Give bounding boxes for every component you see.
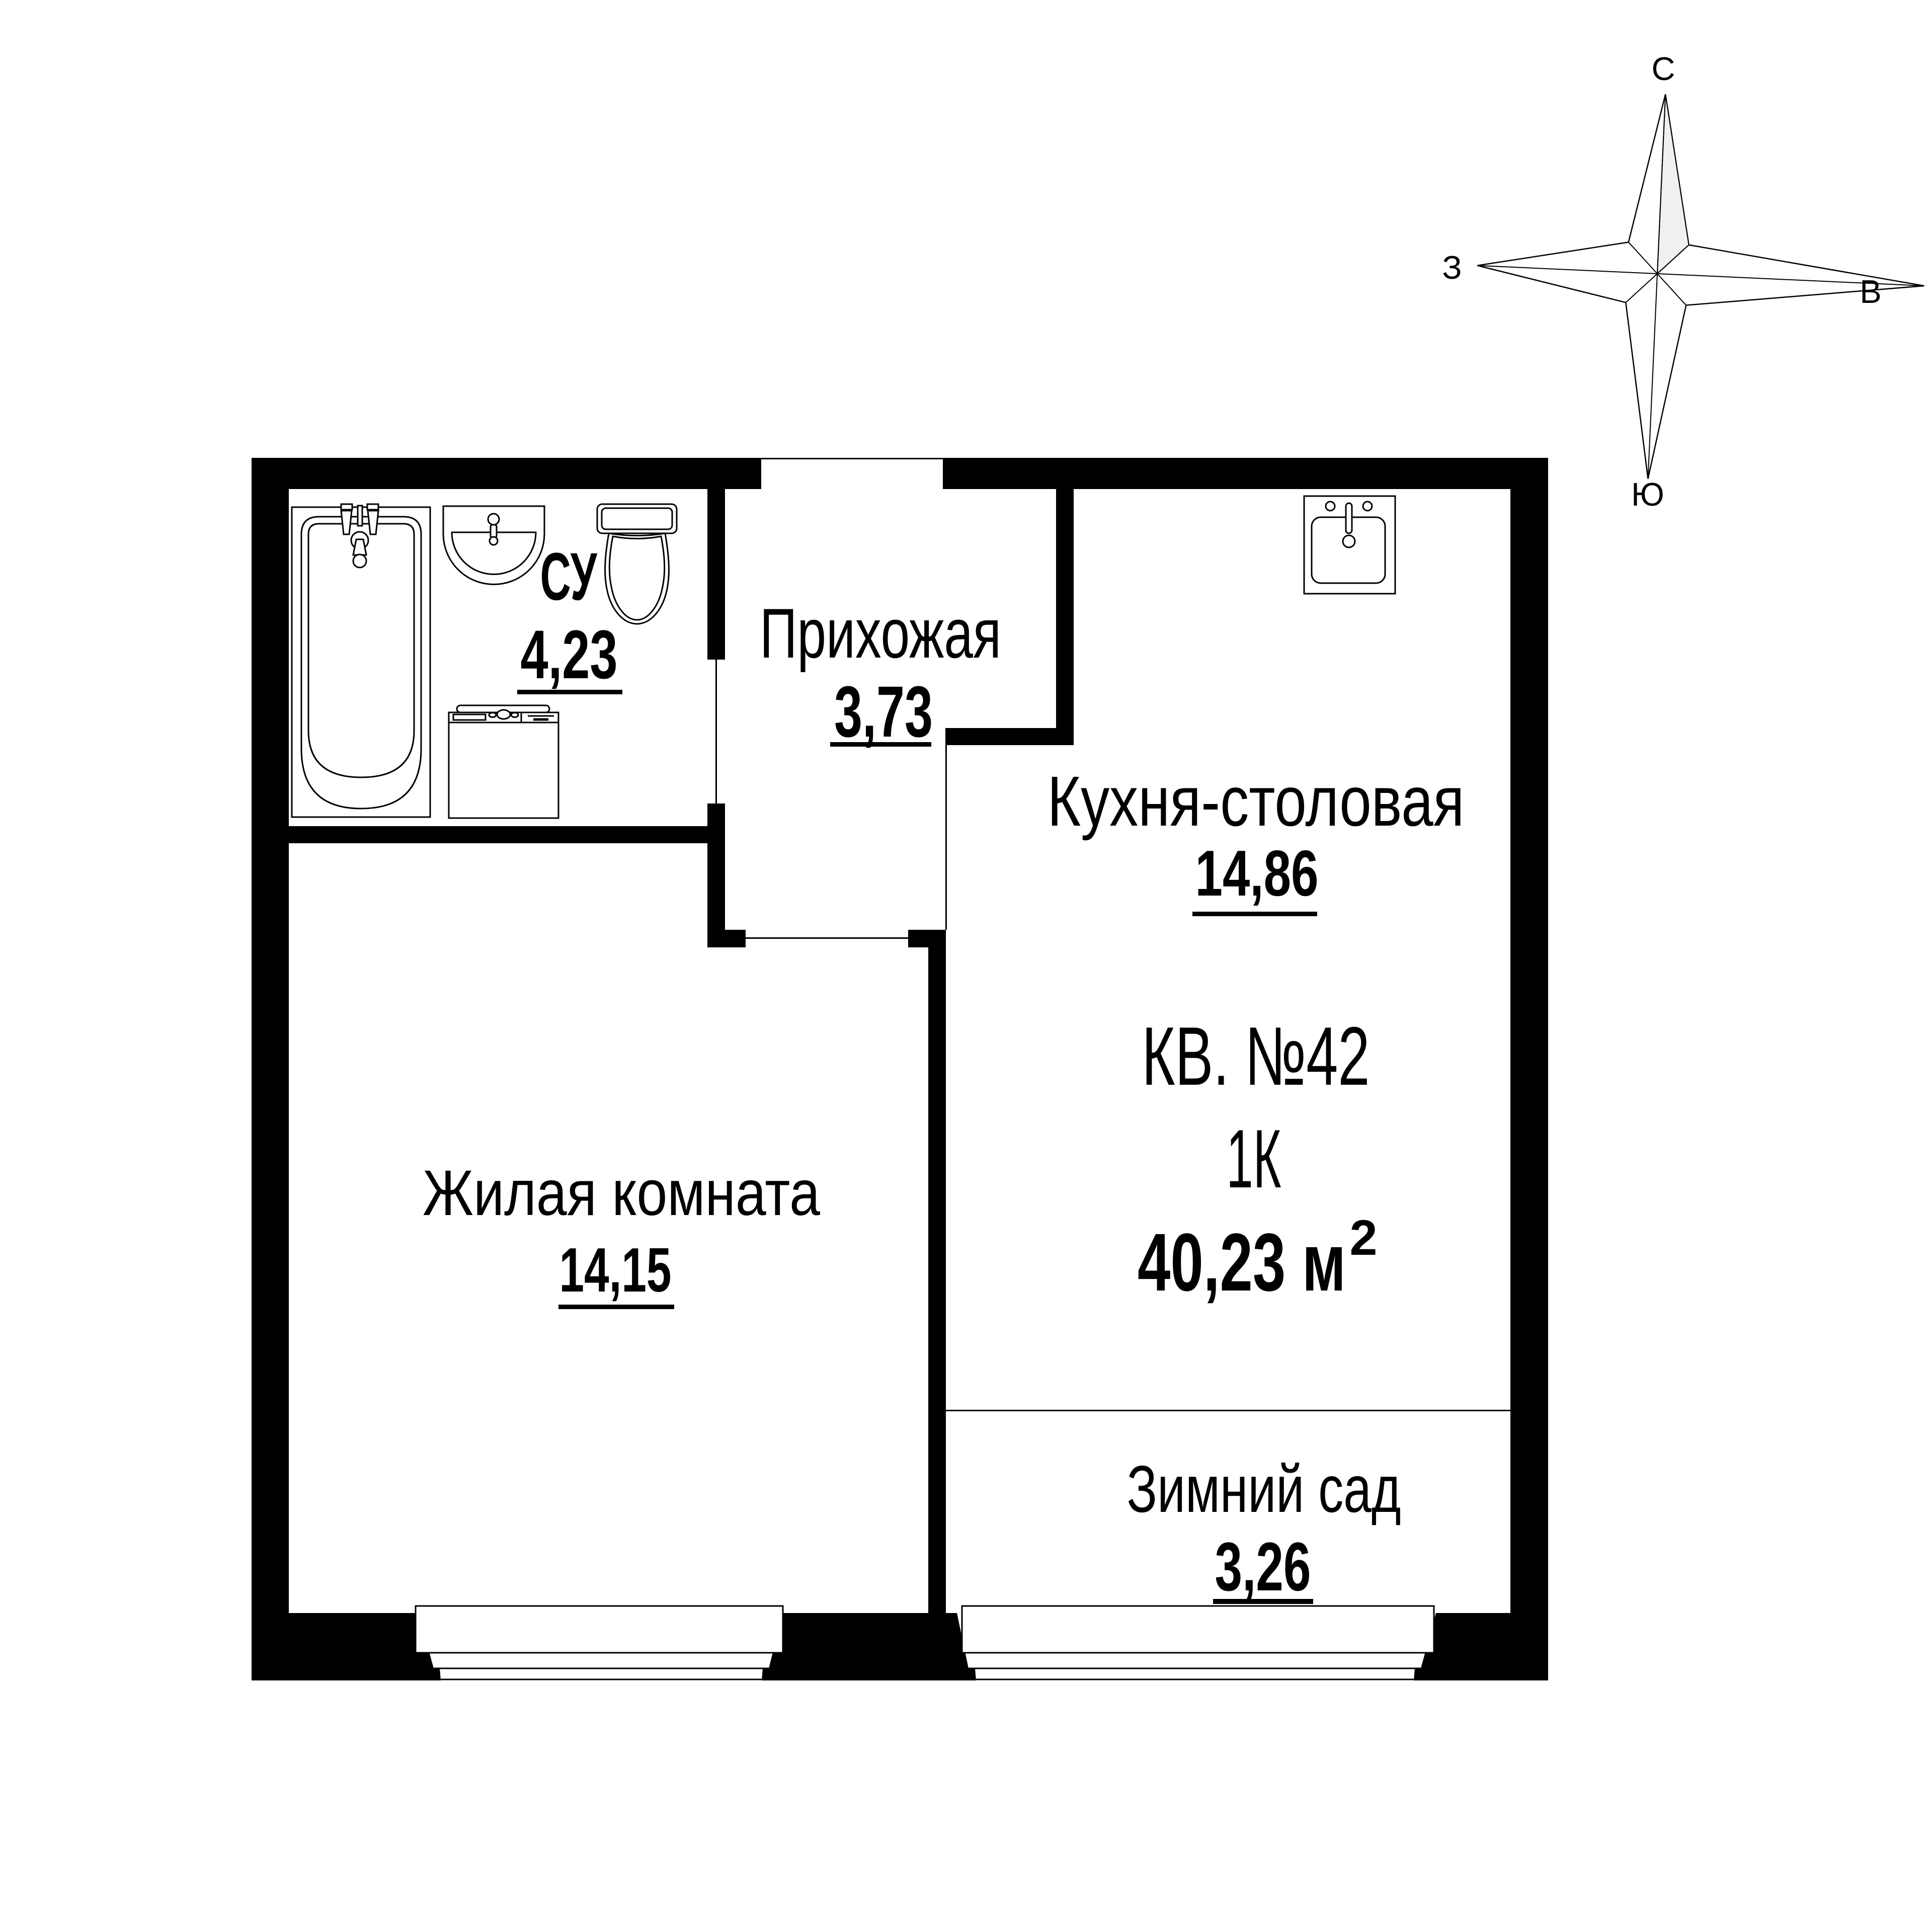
svg-text:4,23: 4,23 bbox=[521, 616, 618, 693]
svg-text:В: В bbox=[1860, 273, 1881, 310]
svg-text:14,15: 14,15 bbox=[559, 1236, 672, 1305]
svg-text:З: З bbox=[1442, 249, 1462, 286]
svg-text:Кухня-столовая: Кухня-столовая bbox=[1048, 761, 1465, 841]
svg-text:1К: 1К bbox=[1227, 1112, 1281, 1205]
svg-text:Ю: Ю bbox=[1631, 476, 1664, 513]
svg-text:3,73: 3,73 bbox=[834, 671, 933, 752]
svg-text:3,26: 3,26 bbox=[1215, 1528, 1311, 1605]
svg-text:2: 2 bbox=[1349, 1210, 1377, 1265]
svg-text:14,86: 14,86 bbox=[1195, 837, 1319, 910]
svg-text:Жилая комната: Жилая комната bbox=[423, 1157, 821, 1229]
svg-text:Прихожая: Прихожая bbox=[760, 594, 1001, 673]
svg-text:С: С bbox=[1652, 50, 1675, 87]
svg-text:Зимний сад: Зимний сад bbox=[1127, 1452, 1401, 1526]
svg-text:КВ. №42: КВ. №42 bbox=[1142, 1010, 1370, 1102]
svg-text:СУ: СУ bbox=[540, 539, 598, 614]
svg-text:40,23 м: 40,23 м bbox=[1138, 1216, 1346, 1308]
